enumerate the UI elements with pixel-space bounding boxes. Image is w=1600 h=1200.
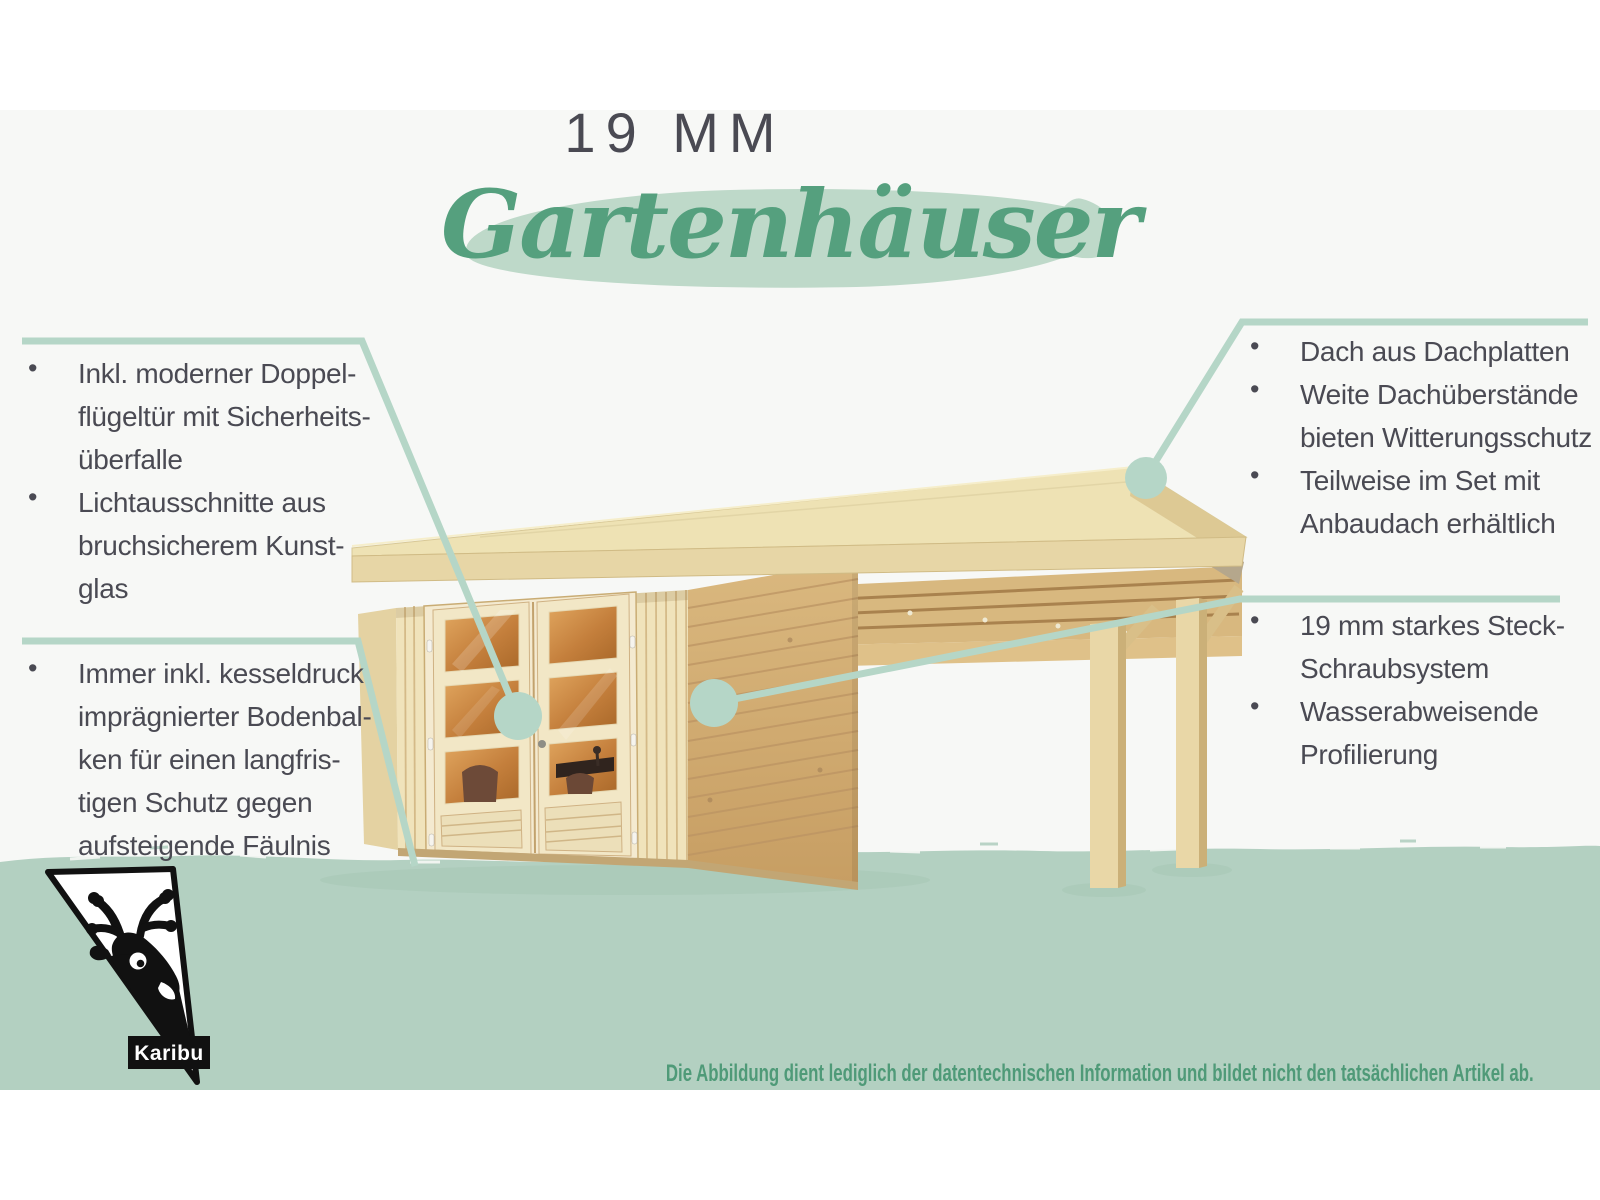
list-item: • Teilweise im Set mit Anbaudach erhältl… <box>1248 459 1598 545</box>
callout-text: 19 mm starkes Steck- Schraubsystem <box>1300 610 1565 684</box>
callout-dot-wall <box>690 679 738 727</box>
list-item: • Inkl. moderner Doppel- flügeltür mit S… <box>26 352 376 481</box>
callout-dot-door <box>494 692 542 740</box>
bullet-icon: • <box>1250 331 1259 362</box>
page-kicker: 19 MM <box>375 100 975 165</box>
callout-dot-roof <box>1125 457 1167 499</box>
callout-middle-right: • 19 mm starkes Steck- Schraubsystem • W… <box>1248 604 1598 776</box>
bullet-icon: • <box>1250 374 1259 405</box>
callout-top-right: • Dach aus Dachplatten • Weite Dachübers… <box>1248 330 1598 545</box>
callout-bottom-left: • Immer inkl. kesseldruck imprägnierter … <box>26 652 376 867</box>
bullet-icon: • <box>1250 691 1259 722</box>
list-item: • 19 mm starkes Steck- Schraubsystem <box>1248 604 1598 690</box>
callout-top-left: • Inkl. moderner Doppel- flügeltür mit S… <box>26 352 376 610</box>
bullet-icon: • <box>28 482 37 513</box>
door-knob <box>538 740 546 748</box>
bullet-icon: • <box>1250 605 1259 636</box>
karibu-logo: Karibu <box>40 858 215 1093</box>
cabin <box>358 560 858 890</box>
bullet-icon: • <box>28 353 37 384</box>
bullet-icon: • <box>28 653 37 684</box>
bullet-icon: • <box>1250 460 1259 491</box>
callout-text: Inkl. moderner Doppel- flügeltür mit Sic… <box>78 358 371 475</box>
callout-text: Wasserabweisende Profilierung <box>1300 696 1539 770</box>
callout-text: Dach aus Dachplatten <box>1300 336 1570 367</box>
list-item: • Wasserabweisende Profilierung <box>1248 690 1598 776</box>
infographic-page: 19 MM Gartenhäuser • Inkl. moderner Dopp… <box>0 0 1600 1200</box>
callout-text: Immer inkl. kesseldruck imprägnierter Bo… <box>78 658 372 861</box>
page-title: Gartenhäuser <box>420 170 1160 280</box>
list-item: • Dach aus Dachplatten <box>1248 330 1598 373</box>
disclaimer-text: Die Abbildung dient lediglich der datent… <box>666 1060 1534 1088</box>
logo-label: Karibu <box>134 1042 204 1065</box>
list-item: • Weite Dachüberstände bieten Witterungs… <box>1248 373 1598 459</box>
callout-text: Weite Dachüberstände bieten Witterungssc… <box>1300 379 1592 453</box>
list-item: • Immer inkl. kesseldruck imprägnierter … <box>26 652 376 867</box>
list-item: • Lichtausschnitte aus bruchsicherem Kun… <box>26 481 376 610</box>
flat-roof <box>352 467 1246 582</box>
callout-text: Lichtausschnitte aus bruchsicherem Kunst… <box>78 487 344 604</box>
callout-text: Teilweise im Set mit Anbaudach erhältlic… <box>1300 465 1556 539</box>
